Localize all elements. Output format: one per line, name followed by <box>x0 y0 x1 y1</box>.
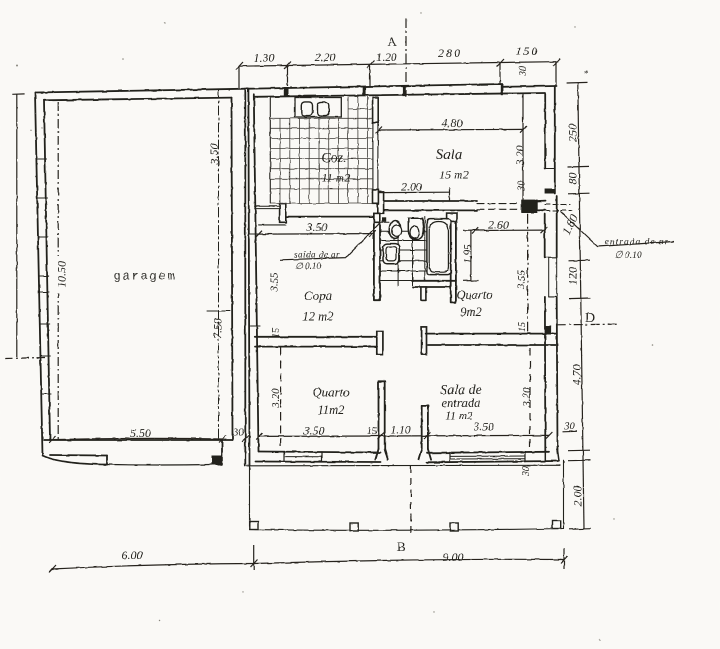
svg-text:D: D <box>585 311 595 326</box>
svg-text:30: 30 <box>517 181 528 192</box>
svg-text:150: 150 <box>516 44 540 58</box>
svg-text:Quarto: Quarto <box>312 385 350 400</box>
svg-text:A: A <box>387 34 397 49</box>
svg-text:3.20: 3.20 <box>515 145 527 166</box>
svg-text:9m2: 9m2 <box>460 305 482 319</box>
svg-text:15 m2: 15 m2 <box>439 168 469 182</box>
svg-text:entrada: entrada <box>442 396 481 410</box>
svg-text:*: * <box>584 69 589 79</box>
svg-text:30: 30 <box>521 466 532 477</box>
svg-text:30: 30 <box>518 66 529 77</box>
svg-text:15: 15 <box>271 328 282 338</box>
svg-text:1.20: 1.20 <box>376 50 397 64</box>
svg-text:12 m2: 12 m2 <box>303 310 334 324</box>
svg-text:3.50: 3.50 <box>472 422 493 434</box>
svg-text:3.50: 3.50 <box>306 220 328 234</box>
svg-text:15: 15 <box>367 426 378 437</box>
svg-text:4.80: 4.80 <box>442 116 463 130</box>
svg-text:Sala: Sala <box>436 147 463 163</box>
svg-text:80: 80 <box>565 173 579 185</box>
svg-text:Quarto: Quarto <box>456 288 492 302</box>
svg-text:3.55: 3.55 <box>269 272 281 293</box>
svg-text:30: 30 <box>232 428 244 439</box>
svg-text:6.00: 6.00 <box>122 548 143 562</box>
svg-text:120: 120 <box>565 267 579 285</box>
svg-text:15: 15 <box>517 322 528 332</box>
svg-text:3.50: 3.50 <box>303 424 325 438</box>
svg-text:3.20: 3.20 <box>270 388 282 409</box>
svg-text:saída de ar: saída de ar <box>294 250 340 260</box>
svg-text:11 m2: 11 m2 <box>445 411 473 423</box>
svg-text:∅ 0.10: ∅ 0.10 <box>295 261 321 271</box>
svg-text:4.70: 4.70 <box>570 365 584 386</box>
svg-text:1.30: 1.30 <box>254 51 275 65</box>
svg-text:∅ 0.10: ∅ 0.10 <box>614 251 642 261</box>
svg-text:2.00: 2.00 <box>401 180 422 194</box>
svg-text:B: B <box>397 539 406 554</box>
svg-text:garagem: garagem <box>113 270 176 284</box>
svg-text:Copa: Copa <box>304 288 333 303</box>
svg-text:3.20: 3.20 <box>521 387 533 408</box>
svg-text:2.60: 2.60 <box>488 217 509 231</box>
svg-text:3.50: 3.50 <box>207 144 221 166</box>
svg-text:30: 30 <box>563 422 575 433</box>
svg-text:entrada de ar: entrada de ar <box>605 238 670 248</box>
svg-text:250: 250 <box>565 124 579 142</box>
svg-text:11 m2: 11 m2 <box>322 171 351 185</box>
svg-text:7.50: 7.50 <box>211 318 225 339</box>
svg-text:2.20: 2.20 <box>315 50 336 64</box>
svg-text:10.50: 10.50 <box>55 261 69 288</box>
svg-text:5.50: 5.50 <box>130 426 151 440</box>
svg-text:3.55: 3.55 <box>516 269 528 290</box>
svg-text:2.00: 2.00 <box>571 486 585 507</box>
svg-text:1.95: 1.95 <box>462 244 474 264</box>
svg-text:9.00: 9.00 <box>443 550 464 564</box>
svg-text:280: 280 <box>438 46 462 60</box>
svg-text:11m2: 11m2 <box>318 403 345 417</box>
svg-text:Coz.: Coz. <box>321 151 346 166</box>
svg-text:1.10: 1.10 <box>390 425 410 437</box>
